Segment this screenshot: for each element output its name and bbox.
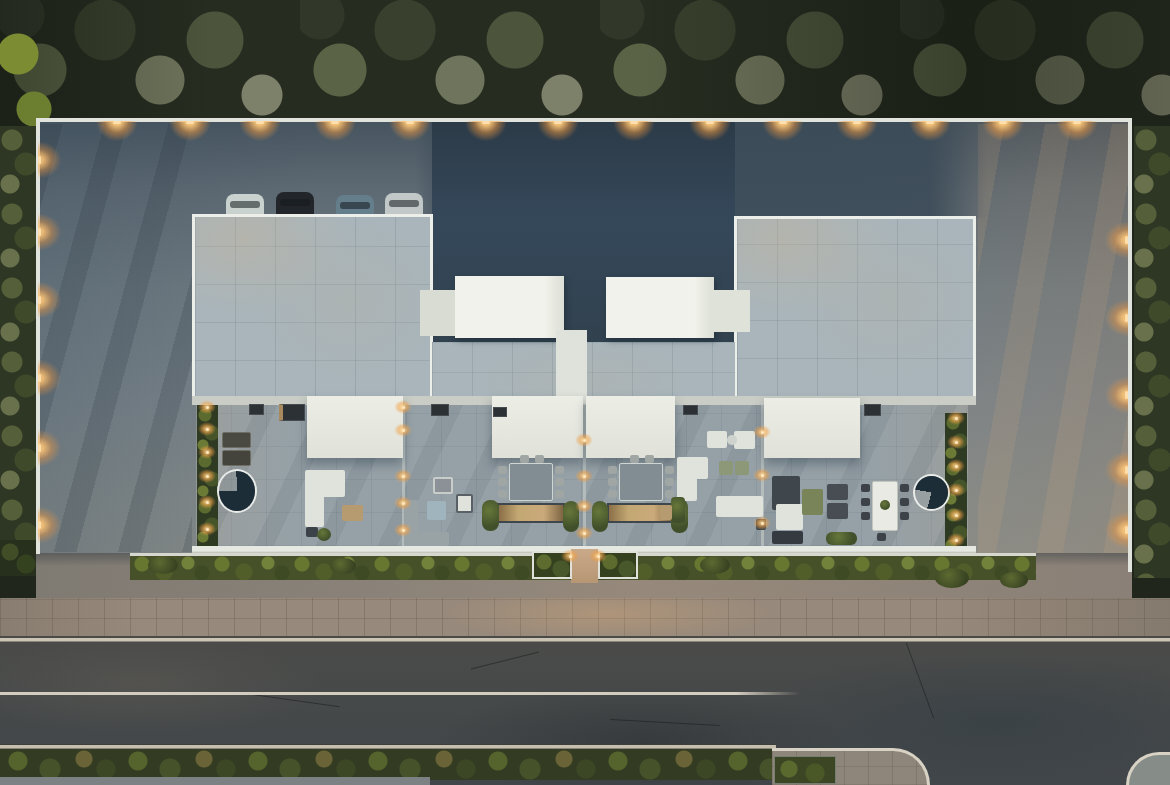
- bench: [660, 505, 672, 520]
- dining-chair: [900, 484, 909, 492]
- dining-chair: [520, 455, 529, 463]
- lounge-chair: [776, 504, 803, 530]
- roof-vent: [864, 404, 881, 416]
- grill-unit: [279, 404, 305, 421]
- entry-path: [571, 549, 598, 583]
- skylight-volume-right: [606, 277, 714, 338]
- table-centerpiece: [880, 500, 890, 510]
- small-tree: [148, 556, 178, 574]
- corner-sofa-seat: [404, 532, 449, 546]
- armchair: [734, 431, 755, 449]
- pouf: [719, 461, 733, 475]
- dining-chair: [665, 466, 674, 474]
- planter-box: [671, 497, 685, 523]
- dining-chair: [535, 455, 544, 463]
- ottoman: [772, 531, 803, 544]
- dining-chair: [665, 478, 674, 486]
- potted-plant: [317, 528, 331, 541]
- sun-lounger: [222, 450, 251, 466]
- small-tree: [700, 556, 730, 574]
- small-tree: [330, 558, 356, 574]
- roof-vent: [493, 407, 507, 417]
- dining-chair: [900, 512, 909, 520]
- island-planter: [774, 756, 836, 784]
- right-vegetation-strip: [1134, 126, 1170, 578]
- sun-lounger: [222, 432, 251, 448]
- dining-chair: [630, 455, 639, 463]
- dining-chair: [555, 490, 564, 498]
- center-roof-divider: [556, 330, 587, 404]
- right-boundary-wall: [1128, 122, 1132, 572]
- armchair: [707, 431, 727, 448]
- outdoor-rug: [427, 501, 446, 520]
- junction-island: [772, 748, 930, 785]
- moss-rug: [802, 489, 823, 515]
- roof-vent: [431, 404, 449, 416]
- lane-divider-line: [0, 692, 800, 695]
- top-boundary-wall: [36, 118, 1132, 122]
- entry-planter: [532, 551, 572, 579]
- dining-chair: [861, 498, 870, 506]
- terrace-bush: [592, 501, 608, 532]
- dining-chair: [498, 490, 507, 498]
- dining-chair: [498, 478, 507, 486]
- dining-chair: [608, 466, 617, 474]
- skylight-volume-outer-right: [712, 290, 750, 332]
- right-roof-block: [734, 216, 976, 400]
- skylight-volume-outer-left: [420, 290, 455, 336]
- armchair-dark: [827, 503, 848, 519]
- dining-chair: [498, 466, 507, 474]
- left-vegetation-strip: [0, 126, 36, 558]
- entry-planter: [598, 551, 638, 579]
- terrace-bush: [482, 500, 499, 531]
- dining-chair: [555, 466, 564, 474]
- sidewalk: [0, 598, 1170, 638]
- dining-table: [619, 463, 663, 501]
- planter-pot: [756, 519, 766, 530]
- armchair-dark: [827, 484, 848, 500]
- left-corner-planter: [0, 540, 36, 576]
- far-footpath: [0, 777, 430, 785]
- armchair: [456, 494, 473, 513]
- canopy-shading: [0, 0, 1170, 126]
- tree-shadow-streaks: [40, 124, 192, 552]
- terrace-bush: [826, 532, 857, 545]
- small-tree: [1000, 572, 1028, 588]
- coffee-table: [342, 505, 363, 521]
- far-verge-vegetation: [0, 749, 774, 780]
- dining-chair: [861, 512, 870, 520]
- aerial-dusk-render: [0, 0, 1170, 785]
- terrace-bush: [563, 501, 579, 532]
- tree-canopy-strip: [0, 0, 1170, 126]
- terrace-planting-strip-right: [945, 413, 967, 546]
- dining-chair: [608, 478, 617, 486]
- left-boundary-wall: [36, 118, 40, 554]
- terrace-awning-unit2: [492, 396, 583, 458]
- side-table-round: [727, 435, 737, 445]
- skylight-volume-left: [455, 276, 564, 338]
- terrace-planting-strip-left: [197, 405, 218, 546]
- armchair: [433, 477, 453, 494]
- dining-chair: [861, 484, 870, 492]
- dining-chair: [877, 533, 886, 541]
- small-tree: [935, 568, 969, 588]
- outdoor-sofa: [716, 496, 763, 517]
- spiral-stair-circle: [219, 471, 255, 511]
- spiral-stair-circle: [915, 476, 948, 509]
- terrace-awning-unit1: [307, 396, 403, 458]
- terrace-awning-unit3: [586, 396, 675, 458]
- pouf: [735, 461, 749, 475]
- left-roof-block: [192, 214, 433, 402]
- wood-deck-planter: [497, 503, 565, 523]
- l-shaped-sofa-chaise: [322, 470, 345, 497]
- roof-vent: [249, 404, 264, 415]
- dining-chair: [555, 478, 564, 486]
- sunlit-streaks: [978, 124, 1130, 586]
- roof-vent: [683, 405, 698, 415]
- terrace-awning-unit4: [764, 398, 860, 458]
- dining-chair: [900, 498, 909, 506]
- dining-table: [509, 463, 553, 501]
- dining-chair: [608, 490, 617, 498]
- dining-chair: [645, 455, 654, 463]
